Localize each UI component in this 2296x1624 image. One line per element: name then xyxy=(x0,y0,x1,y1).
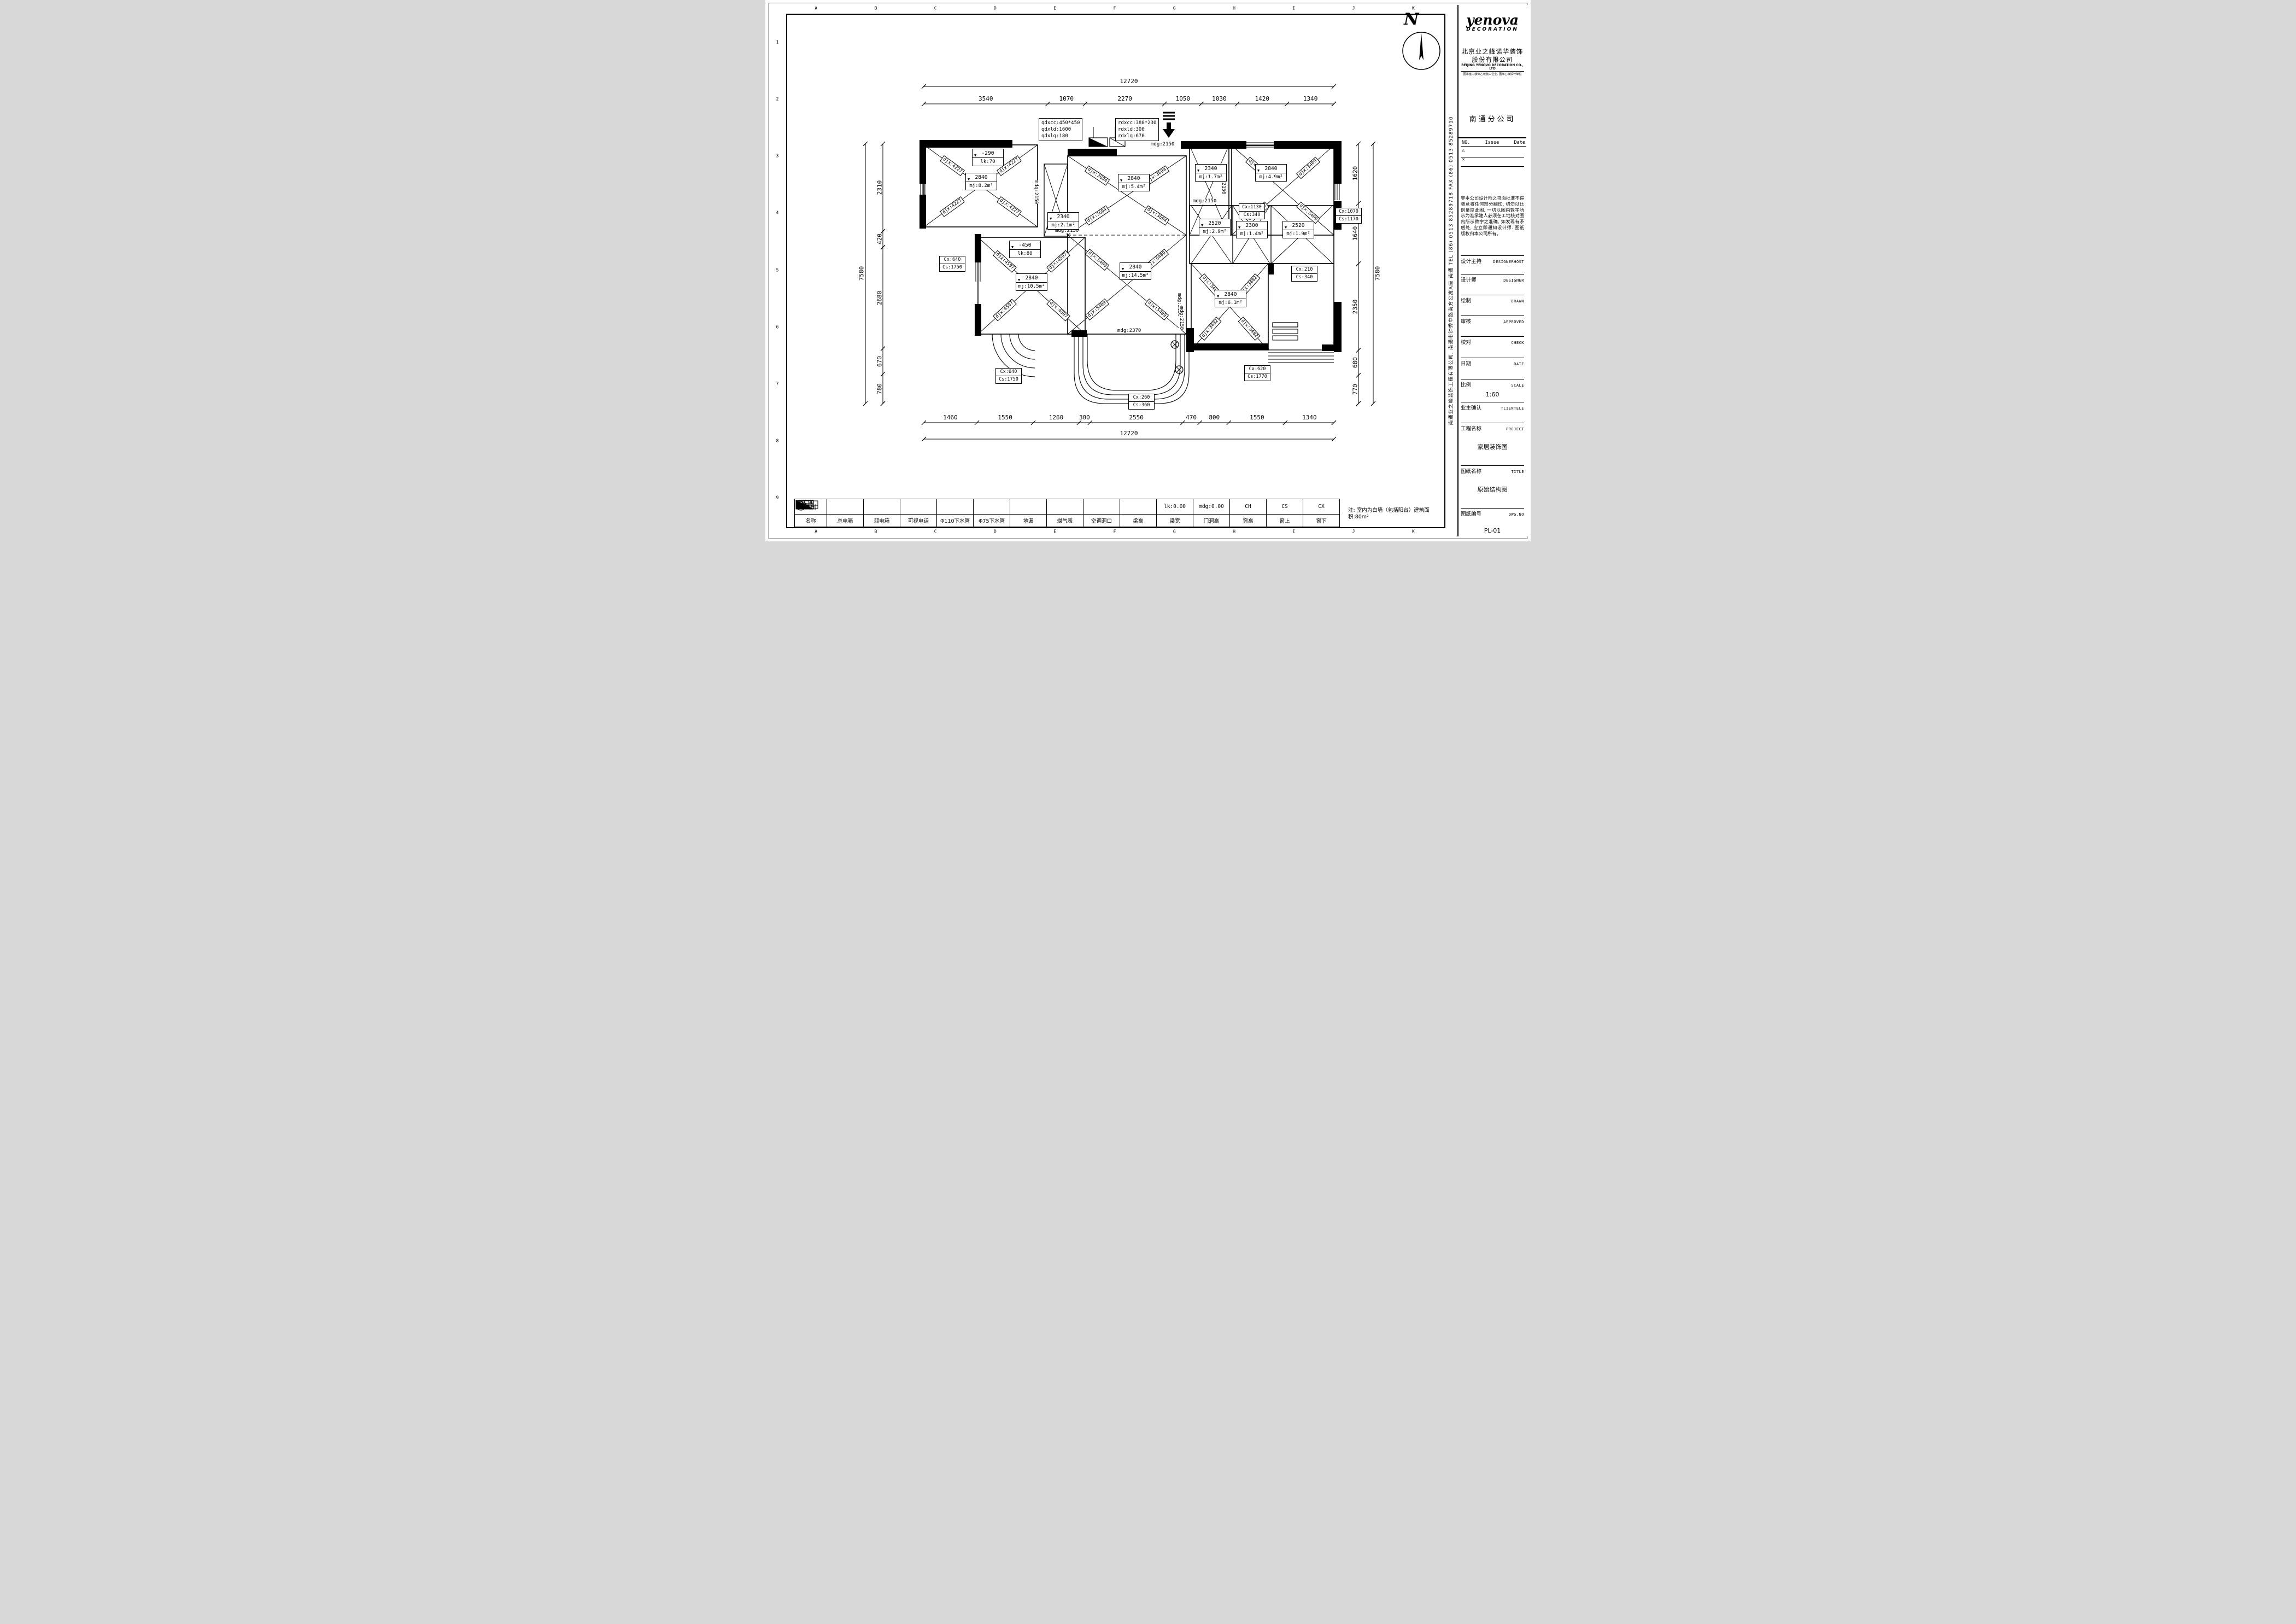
window-box: Cx:260Cs:360 xyxy=(1128,394,1155,410)
legend-column: CX窗下 xyxy=(1303,499,1339,527)
area-value: mj:1.7m² xyxy=(1196,173,1226,181)
level-box: 2840▼mj:14.5m² xyxy=(1120,262,1151,280)
grid-letter-top: H xyxy=(1233,6,1235,11)
legend-column: CS窗上 xyxy=(1267,499,1303,527)
legend-column: 可视电话 xyxy=(900,499,937,527)
dimension-value: 3540 xyxy=(979,95,993,102)
legend-column: 总电箱 xyxy=(827,499,864,527)
issue-row: ✕ xyxy=(1461,157,1524,167)
field-value: 家居装饰图 xyxy=(1461,442,1524,451)
level-box: -290▼lk:70 xyxy=(972,149,1004,166)
titleblock-field-drawn: 绘制DRAWN xyxy=(1461,295,1524,304)
info-line: rdxld:300 xyxy=(1118,126,1156,133)
titleblock-field-tlientele: 业主确认TLIENTELE xyxy=(1461,402,1524,411)
level-marker-icon: ▼ xyxy=(968,176,970,184)
issue-col-issue: Issue xyxy=(1485,140,1500,145)
company-name-en: BEIJING YENOVO DECORATION CO., LTD xyxy=(1461,64,1524,72)
legend-name: 煤气表 xyxy=(1047,515,1083,527)
field-label-en: SCALE xyxy=(1511,383,1524,388)
level-value: 2840▼ xyxy=(1256,165,1286,173)
disclaimer-text: 非本公司设计师之书面批准不得随意将任何部分翻印. 切勿以比例量度此图, 一切以图… xyxy=(1461,195,1524,237)
dimension-overall: 12720 xyxy=(1120,430,1138,437)
level-value: 2340▼ xyxy=(1196,165,1226,173)
level-box: 2840▼mj:10.5m² xyxy=(1016,273,1047,291)
level-value: 2840▼ xyxy=(1118,174,1149,183)
level-value: 2520▼ xyxy=(1199,219,1230,228)
window-box: Cx:1070Cs:1170 xyxy=(1336,208,1362,224)
field-label-en: PROJECT xyxy=(1506,427,1524,431)
legend-name: 可视电话 xyxy=(900,515,936,527)
window-box: Cx:640Cs:1750 xyxy=(995,368,1022,384)
level-marker-icon: ▼ xyxy=(974,151,976,160)
ac-hole-icon: K xyxy=(1083,499,1120,515)
text-icon: CX xyxy=(1303,499,1339,515)
field-label-cn: 日期 xyxy=(1461,359,1471,367)
text-icon: lk:0.00 xyxy=(1157,499,1193,515)
titleblock-field-designer: 设计师DESIGNER xyxy=(1461,274,1524,283)
area-value: mj:1.9m² xyxy=(1283,230,1314,238)
level-value: 2340▼ xyxy=(1048,213,1079,221)
drawing-sheet: djx:4227djx:4227djx:4227djx:4227djx:4597… xyxy=(765,0,1531,541)
grid-number-left: 6 xyxy=(776,324,779,329)
window-value: Cx:260 xyxy=(1129,394,1154,402)
field-label-en: DRAWN xyxy=(1511,299,1524,303)
grid-number-left: 5 xyxy=(776,267,779,272)
grid-number-left: 2 xyxy=(776,97,779,102)
legend-column: 煤气管道煤气表 xyxy=(1047,499,1083,527)
dimension-value: 1340 xyxy=(1303,95,1318,102)
mdg-label: mdg:2370 xyxy=(1117,328,1141,334)
dimension-overall: 7580 xyxy=(1374,266,1381,281)
gas-meter-icon: 煤气管道 xyxy=(1047,499,1083,515)
grid-letter-top: J xyxy=(1352,6,1355,11)
level-value: -290▼ xyxy=(973,149,1003,158)
window-value: Cs:340 xyxy=(1239,212,1264,219)
window-box: Cx:620Cs:1770 xyxy=(1244,365,1270,381)
titleblock-field-date: 日期DATE xyxy=(1461,358,1524,367)
dimension-value: 680 xyxy=(1352,357,1359,368)
legend-name: 总电箱 xyxy=(827,515,863,527)
window-value: Cs:360 xyxy=(1129,402,1154,409)
field-label-cn: 工程名称 xyxy=(1461,424,1481,432)
dimension-value: 1620 xyxy=(1352,166,1359,181)
dimension-overall: 12720 xyxy=(1120,78,1138,85)
legend-column: CH窗高 xyxy=(1230,499,1267,527)
window-value: Cx:210 xyxy=(1292,266,1317,274)
grid-letter-bottom: I xyxy=(1292,529,1295,534)
legend-name: Φ110下水管 xyxy=(937,515,973,527)
grid-letter-top: E xyxy=(1053,6,1056,11)
level-value: 2840▼ xyxy=(966,173,997,182)
grid-number-left: 8 xyxy=(776,438,779,443)
level-marker-icon: ▼ xyxy=(1217,293,1219,301)
beam-height-icon: 0.00 xyxy=(1120,499,1156,515)
window-box: Cx:1130Cs:340 xyxy=(1239,203,1265,219)
level-value: 2840▼ xyxy=(1215,290,1246,299)
level-value: 2840▼ xyxy=(1120,263,1151,272)
legend-column: 弱电箱 xyxy=(864,499,900,527)
window-value: Cs:340 xyxy=(1292,274,1317,281)
info-line: qdxcc:450*450 xyxy=(1041,120,1080,126)
dimension-value: 2550 xyxy=(1129,414,1144,421)
titleblock-field-title: 图纸名称TITLE xyxy=(1461,465,1524,475)
window-value: Cx:1070 xyxy=(1336,208,1361,216)
level-marker-icon: ▼ xyxy=(1018,276,1020,284)
dimension-value: 300 xyxy=(1079,414,1090,421)
field-value: 1:60 xyxy=(1461,391,1524,398)
info-box: qdxcc:450*450qdxld:1600qdxlq:180 xyxy=(1039,118,1082,141)
text-icon: mdg:0.00 xyxy=(1193,499,1229,515)
area-value: mj:14.5m² xyxy=(1120,272,1151,279)
level-box: 2840▼mj:5.4m² xyxy=(1118,174,1150,191)
field-value: 原始结构图 xyxy=(1461,485,1524,494)
dimension-value: 1340 xyxy=(1302,414,1317,421)
level-box: 2840▼mj:8.2m² xyxy=(965,173,997,190)
grid-letter-top: C xyxy=(934,6,937,11)
window-value: Cs:1770 xyxy=(1245,373,1270,381)
company-name-cn-2: 股份有限公司 xyxy=(1461,56,1524,64)
floor-drain-icon xyxy=(1010,499,1046,515)
field-label-en: DATE xyxy=(1514,362,1524,366)
field-label-en: DESIGNER xyxy=(1503,278,1524,283)
legend-name: 窗下 xyxy=(1303,515,1339,527)
dimension-value: 1070 xyxy=(1059,95,1074,102)
area-value: mj:10.5m² xyxy=(1016,283,1047,290)
dimension-value: 1460 xyxy=(943,414,958,421)
company-logo: yenova xyxy=(1461,14,1524,27)
level-box: 2840▼mj:4.9m² xyxy=(1255,164,1287,182)
field-label-cn: 校对 xyxy=(1461,338,1471,346)
legend-column: lk:0.00梁宽 xyxy=(1157,499,1193,527)
level-marker-icon: ▼ xyxy=(1197,167,1199,175)
sidebar-company-text: 南通业之峰装饰工程有限公司. 南通市钟秀中路南方公寓A座 南通 TEL (86)… xyxy=(1443,5,1457,536)
titleblock-field-check: 校对CHECK xyxy=(1461,336,1524,346)
issue-row: △ xyxy=(1461,148,1524,157)
window-value: Cs:1750 xyxy=(940,264,965,271)
mdg-label: mdg:2150 xyxy=(1151,142,1174,147)
company-cert: 国家室内装饰乙级施工企业, 国家乙级设计单位 xyxy=(1461,72,1524,76)
grid-letter-top: K xyxy=(1412,6,1415,11)
level-marker-icon: ▼ xyxy=(1050,215,1052,223)
window-value: Cs:1170 xyxy=(1336,216,1361,223)
legend-name: 梁高 xyxy=(1120,515,1156,527)
plan-note: 注: 室内为白墙（包括阳台）建筑面积:80m² xyxy=(1348,507,1442,521)
grid-letter-bottom: K xyxy=(1412,529,1415,534)
field-label-en: DESIGNERHOST xyxy=(1493,260,1524,264)
field-label-cn: 设计师 xyxy=(1461,276,1477,283)
grid-number-left: 7 xyxy=(776,381,779,386)
legend-name: 名称 xyxy=(795,515,827,527)
field-label-en: DWG.NO xyxy=(1509,512,1524,517)
area-value: mj:6.1m² xyxy=(1215,299,1246,307)
level-box: -450▼lk:80 xyxy=(1009,241,1041,258)
grid-letter-bottom: H xyxy=(1233,529,1235,534)
area-value: mj:2.9m² xyxy=(1199,228,1230,236)
legend-name: 空调洞口 xyxy=(1083,515,1120,527)
level-box: 2340▼mj:2.1m² xyxy=(1047,212,1079,230)
area-value: lk:80 xyxy=(1010,250,1040,258)
legend-name: Φ75下水管 xyxy=(974,515,1010,527)
field-label-cn: 业主确认 xyxy=(1461,404,1481,411)
legend-name: 弱电箱 xyxy=(864,515,900,527)
issue-col-date: Date xyxy=(1514,140,1525,145)
area-value: mj:8.2m² xyxy=(966,182,997,190)
area-value: mj:5.4m² xyxy=(1118,183,1149,191)
legend-name: 梁宽 xyxy=(1157,515,1193,527)
window-value: Cx:640 xyxy=(940,256,965,264)
mdg-label: mdg:2150 xyxy=(1179,306,1184,330)
video-phone-icon xyxy=(900,499,936,515)
level-marker-icon: ▼ xyxy=(1120,177,1122,185)
compass-icon xyxy=(1397,26,1446,75)
level-marker-icon: ▼ xyxy=(1201,221,1203,230)
grid-letter-top: I xyxy=(1292,6,1295,11)
window-value: Cs:1750 xyxy=(996,376,1021,383)
legend-table: 图例名称总电箱弱电箱可视电话Φ110下水管Φ75下水管地漏煤气管道煤气表K空调洞… xyxy=(794,499,1340,527)
grid-letter-top: F xyxy=(1114,6,1116,11)
dimension-value: 2350 xyxy=(1352,300,1359,314)
dimension-value: 1420 xyxy=(1255,95,1270,102)
info-line: qdxlq:180 xyxy=(1041,133,1080,139)
dimension-value: 780 xyxy=(876,383,883,394)
legend-column: Φ75下水管 xyxy=(974,499,1010,527)
legend-column: K空调洞口 xyxy=(1083,499,1120,527)
grid-letter-bottom: F xyxy=(1114,529,1116,534)
level-marker-icon: ▼ xyxy=(1122,265,1124,273)
weak-electric-icon xyxy=(864,499,900,515)
field-label-en: TITLE xyxy=(1511,470,1524,474)
area-value: lk:70 xyxy=(973,158,1003,166)
area-value: mj:1.4m² xyxy=(1237,230,1267,238)
level-box: 2300▼mj:1.4m² xyxy=(1236,221,1268,238)
level-marker-icon: ▼ xyxy=(1011,243,1014,252)
text-icon: CS xyxy=(1267,499,1303,515)
grid-letter-bottom: D xyxy=(994,529,997,534)
branch-name: 南通分公司 xyxy=(1461,113,1524,124)
legend-column: Φ110下水管 xyxy=(937,499,974,527)
titleblock-field-project: 工程名称PROJECT xyxy=(1461,423,1524,432)
dimension-value: 670 xyxy=(876,356,883,367)
field-value: PL-01 xyxy=(1461,527,1524,534)
window-box: Cx:210Cs:340 xyxy=(1291,266,1317,282)
level-value: -450▼ xyxy=(1010,241,1040,250)
level-marker-icon: ▼ xyxy=(1257,167,1260,175)
area-value: mj:2.1m² xyxy=(1048,221,1079,229)
grid-number-left: 3 xyxy=(776,154,779,159)
level-value: 2300▼ xyxy=(1237,221,1267,230)
titleblock-field-scale: 比例SCALE xyxy=(1461,379,1524,388)
window-value: Cx:1130 xyxy=(1239,204,1264,212)
grid-number-left: 4 xyxy=(776,211,779,215)
level-box: 2840▼mj:6.1m² xyxy=(1215,290,1246,307)
dimension-value: 1260 xyxy=(1049,414,1064,421)
dimension-value: 800 xyxy=(1209,414,1220,421)
dimension-value: 1050 xyxy=(1176,95,1191,102)
grid-letter-bottom: J xyxy=(1352,529,1355,534)
level-marker-icon: ▼ xyxy=(1285,224,1287,232)
grid-letter-top: B xyxy=(874,6,877,11)
grid-number-left: 9 xyxy=(776,495,779,500)
legend-name: 地漏 xyxy=(1010,515,1046,527)
legend-column: 0.00梁高 xyxy=(1120,499,1157,527)
level-box: 2520▼mj:1.9m² xyxy=(1282,221,1314,238)
dimension-value: 470 xyxy=(1186,414,1197,421)
area-value: mj:4.9m² xyxy=(1256,173,1286,181)
level-box: 2340▼mj:1.7m² xyxy=(1195,164,1227,182)
titleblock-field-designerhost: 设计主持DESIGNERHOST xyxy=(1461,255,1524,265)
grid-letter-top: A xyxy=(815,6,817,11)
field-label-cn: 绘制 xyxy=(1461,296,1471,304)
legend-name: 门洞高 xyxy=(1193,515,1229,527)
grid-letter-bottom: A xyxy=(815,529,817,534)
company-name-cn-1: 北京业之峰诺华装饰 xyxy=(1461,48,1524,56)
legend-column: 地漏 xyxy=(1010,499,1047,527)
grid-letter-bottom: E xyxy=(1053,529,1056,534)
grid-letter-bottom: C xyxy=(934,529,937,534)
dimension-value: 1030 xyxy=(1212,95,1227,102)
info-box: rdxcc:380*230rdxld:300rdxlq:670 xyxy=(1115,118,1159,141)
level-value: 2520▼ xyxy=(1283,221,1314,230)
mdg-label: mdg:2150 xyxy=(1033,180,1039,204)
issue-col-no: NO. xyxy=(1462,140,1470,145)
legend-name: 窗上 xyxy=(1267,515,1303,527)
title-block: yenova DECORATION 北京业之峰诺华装饰 股份有限公司 BEIJI… xyxy=(1457,5,1527,536)
info-line: rdxlq:670 xyxy=(1118,133,1156,139)
pipe-75-icon xyxy=(974,499,1010,515)
field-label-en: CHECK xyxy=(1511,341,1524,345)
dimension-value: 1550 xyxy=(1250,414,1264,421)
company-logo-sub: DECORATION xyxy=(1461,27,1524,32)
info-line: rdxcc:380*230 xyxy=(1118,120,1156,126)
window-box: Cx:640Cs:1750 xyxy=(939,256,965,272)
grid-letter-top: G xyxy=(1173,6,1176,11)
field-label-cn: 比例 xyxy=(1461,381,1471,388)
window-value: Cx:620 xyxy=(1245,366,1270,373)
dimension-value: 2270 xyxy=(1117,95,1132,102)
main-electric-icon xyxy=(827,499,863,515)
dimension-value: 420 xyxy=(876,234,883,245)
field-label-cn: 设计主持 xyxy=(1461,257,1481,265)
titleblock-field-dwg.no: 图纸编号DWG.NO xyxy=(1461,508,1524,517)
mdg-label: mdg:2150 xyxy=(1193,198,1216,204)
dimension-value: 1550 xyxy=(998,414,1012,421)
level-value: 2840▼ xyxy=(1016,274,1047,283)
dimension-value: 2680 xyxy=(876,291,883,306)
window-value: Cx:640 xyxy=(996,369,1021,376)
legend-column: mdg:0.00门洞高 xyxy=(1193,499,1230,527)
field-label-cn: 审核 xyxy=(1461,317,1471,325)
dimension-value: 770 xyxy=(1352,384,1359,395)
pipe-110-icon xyxy=(937,499,973,515)
field-label-cn: 图纸名称 xyxy=(1461,467,1481,475)
field-label-en: APPROVED xyxy=(1503,320,1524,324)
field-label-en: TLIENTELE xyxy=(1501,406,1524,411)
level-marker-icon: ▼ xyxy=(1238,224,1240,232)
dimension-value: 1640 xyxy=(1352,226,1359,241)
field-label-cn: 图纸编号 xyxy=(1461,510,1481,517)
text-icon: CH xyxy=(1230,499,1266,515)
grid-letter-top: D xyxy=(994,6,997,11)
grid-letter-bottom: G xyxy=(1173,529,1176,534)
dimension-overall: 7580 xyxy=(858,266,865,281)
dimension-value: 2310 xyxy=(876,180,883,195)
level-box: 2520▼mj:2.9m² xyxy=(1199,219,1231,236)
grid-letter-bottom: B xyxy=(874,529,877,534)
titleblock-field-approved: 审核APPROVED xyxy=(1461,316,1524,325)
legend-name: 窗高 xyxy=(1230,515,1266,527)
grid-number-left: 1 xyxy=(776,40,779,45)
info-line: qdxld:1600 xyxy=(1041,126,1080,133)
